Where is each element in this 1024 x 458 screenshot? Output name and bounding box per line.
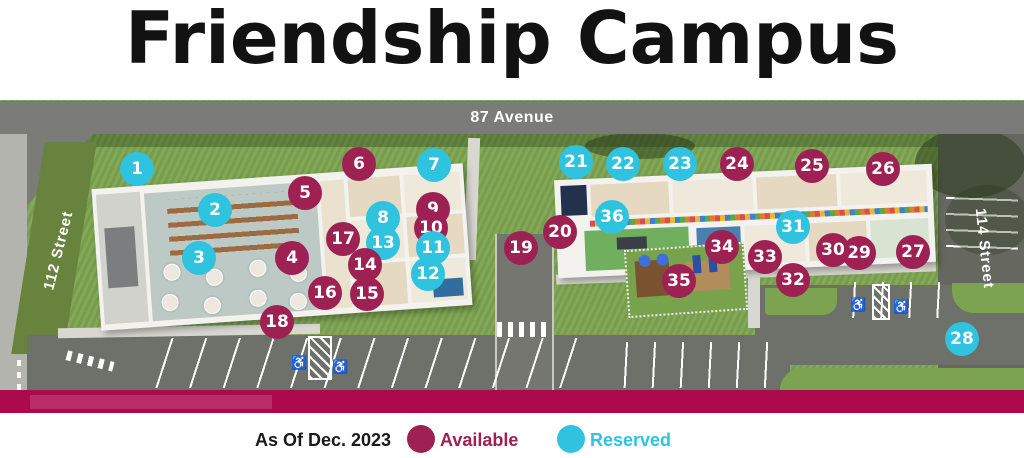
avenue-bar: 87 Avenue	[0, 101, 1024, 134]
suite-room	[350, 218, 405, 262]
round-table	[163, 263, 181, 281]
bottom-banner	[0, 390, 1024, 413]
tree-shadow-1	[585, 133, 695, 159]
available-label: Available	[440, 430, 518, 451]
swing	[708, 254, 717, 273]
street-label-87-avenue: 87 Avenue	[470, 109, 553, 127]
walkway-playground-east	[748, 272, 760, 328]
classroom	[590, 181, 669, 216]
grass-pocket-west	[765, 288, 837, 315]
south-parking-lines	[140, 338, 590, 388]
swing	[692, 255, 701, 274]
banner-highlight	[30, 395, 272, 409]
south-parking-lines-2	[600, 342, 790, 388]
building-west	[92, 163, 473, 331]
crosswalk-center	[497, 322, 548, 337]
outdoor-playground	[624, 242, 748, 318]
play-mat	[617, 236, 647, 249]
round-table	[205, 268, 223, 286]
climbing-frame	[685, 259, 731, 292]
legend-as-of-date: As Of Dec. 2023	[255, 430, 391, 451]
lane-dashes-left-road	[17, 350, 21, 390]
bench-rows	[166, 191, 300, 258]
classroom	[672, 178, 753, 213]
round-table	[289, 264, 307, 282]
reserved-dot	[557, 425, 585, 453]
reserved-label: Reserved	[590, 430, 671, 451]
grass-shadow-strip	[0, 133, 1024, 147]
page-title: Friendship Campus	[0, 0, 1024, 80]
lobby-corridor	[320, 180, 353, 309]
legend: As Of Dec. 2023 Available Reserved	[0, 422, 1024, 458]
kitchen-equipment	[104, 226, 138, 288]
suite-room	[347, 176, 402, 218]
wheelchair-icon: ♿	[893, 300, 909, 313]
available-dot	[407, 425, 435, 453]
no-park-hatch-south	[308, 336, 332, 380]
suite-room	[403, 171, 462, 213]
round-table	[161, 293, 179, 311]
no-park-hatch-east	[872, 284, 890, 320]
main-hall	[144, 182, 325, 322]
building-east	[554, 164, 936, 278]
wheelchair-icon: ♿	[332, 360, 348, 373]
classroom	[808, 221, 868, 261]
round-table	[203, 296, 221, 314]
classroom	[756, 174, 837, 209]
classroom	[744, 223, 806, 264]
campus-map: ♿ ♿ ♿ ♿ 112 Street 114 Street	[0, 100, 1024, 413]
round-table	[249, 289, 267, 307]
round-table	[249, 259, 267, 277]
round-table	[289, 292, 307, 310]
suite-room	[406, 213, 465, 257]
suite-room	[353, 261, 408, 307]
classroom	[840, 170, 927, 206]
grass-strip-southeast	[780, 368, 1024, 390]
sensory-room	[560, 185, 587, 216]
wheelchair-icon: ♿	[850, 298, 866, 311]
classroom	[870, 218, 930, 258]
wheelchair-icon: ♿	[291, 356, 307, 369]
indoor-pool	[433, 277, 464, 297]
